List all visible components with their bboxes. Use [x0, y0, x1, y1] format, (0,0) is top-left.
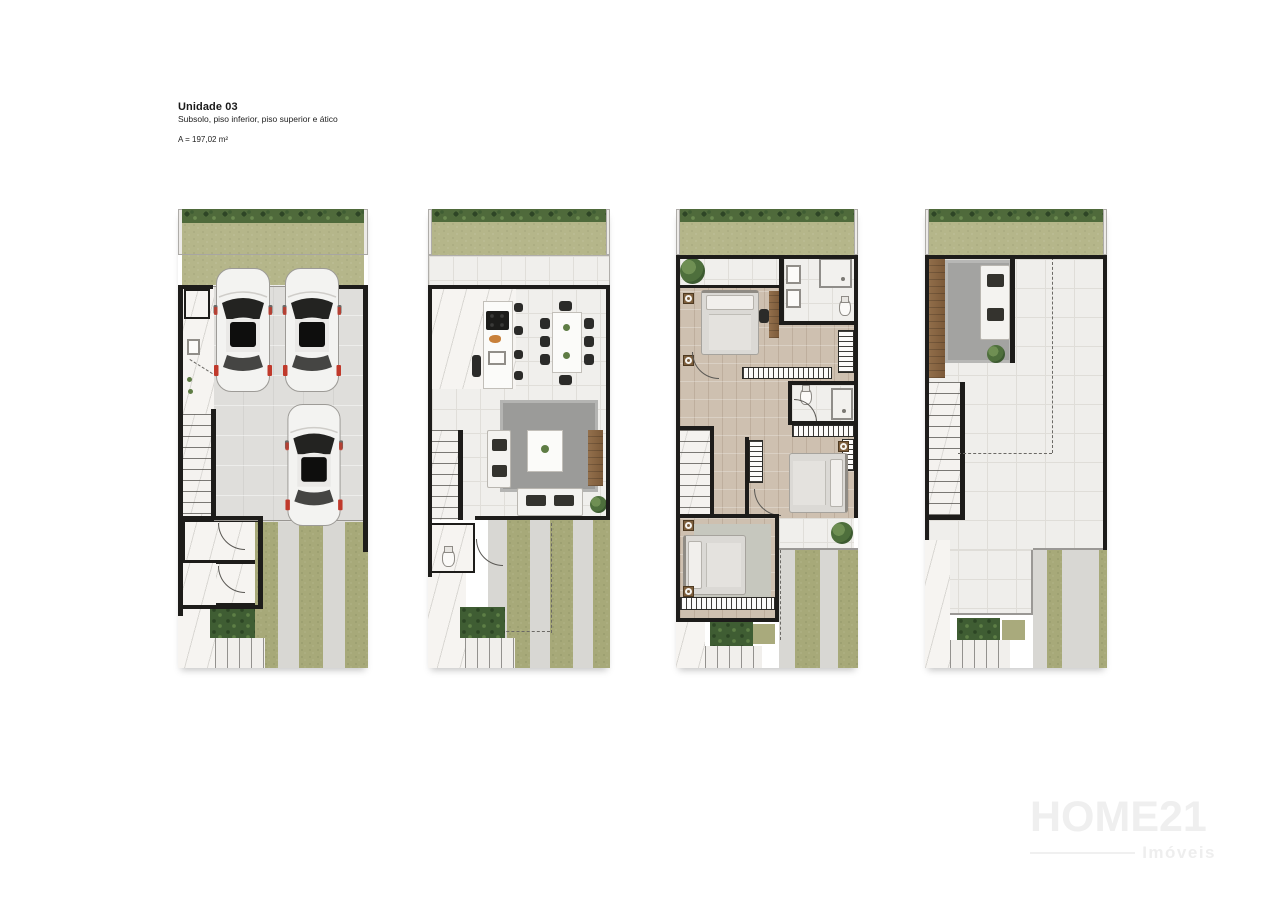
- shrub-hedge: [432, 209, 606, 222]
- unit-subtitle: Subsolo, piso inferior, piso superior e …: [178, 114, 498, 124]
- driveway-grass-strip: [299, 522, 323, 668]
- projection-dashed-line: [1052, 257, 1053, 453]
- storage-closet: [184, 289, 210, 319]
- laundry-tub: [187, 339, 200, 355]
- wall-rooms-right: [258, 516, 263, 609]
- wall-top-left: [183, 285, 213, 289]
- cooktop: [486, 311, 509, 330]
- dining-chairs-right: [584, 318, 594, 329]
- watermark-rule: [1030, 852, 1135, 854]
- master-bed: [701, 290, 759, 355]
- bath-sink: [786, 289, 801, 308]
- dining-chairs-left: [540, 318, 550, 329]
- side-strip: [1103, 209, 1107, 255]
- wall-rooms-bottom: [178, 605, 263, 609]
- closet-hatch: [838, 330, 854, 373]
- tv-panel: [588, 430, 603, 486]
- watermark-brand: HOME21: [1030, 796, 1216, 839]
- side-strip: [854, 209, 858, 255]
- toilet: [839, 299, 851, 316]
- fence-line: [178, 254, 368, 255]
- garden-steps: [950, 640, 1010, 668]
- closet-hatch: [792, 425, 854, 437]
- shower-box: [831, 388, 853, 420]
- suite-top-wall: [680, 285, 779, 288]
- wall-left: [428, 289, 432, 577]
- counter-stool: [472, 355, 481, 377]
- floor-plant: [590, 496, 607, 513]
- parapet: [1031, 550, 1033, 615]
- bath-sink: [786, 265, 801, 284]
- door-swing: [476, 539, 503, 566]
- stair-wall: [458, 430, 463, 520]
- pan: [489, 335, 501, 343]
- wall-top: [428, 285, 610, 289]
- bath-wall: [779, 321, 858, 325]
- driveway-below: [1033, 550, 1107, 668]
- projection-dashed-line: [780, 550, 781, 640]
- lawn-patch: [753, 624, 775, 644]
- wall-bottom: [475, 516, 610, 520]
- unit-area: A = 197,02 m²: [178, 135, 498, 144]
- dining-table: [552, 312, 582, 373]
- parapet: [779, 548, 858, 550]
- plan-atico: [925, 209, 1107, 668]
- staircase: [676, 430, 710, 520]
- shrub-hedge: [680, 209, 854, 222]
- backyard-grass-strip: [593, 520, 610, 668]
- watermark: HOME21 Imóveis: [1030, 796, 1216, 863]
- parapet: [1033, 548, 1107, 550]
- front-lawn: [929, 222, 1103, 255]
- stair-wall: [710, 430, 714, 520]
- wall-top: [676, 255, 858, 259]
- closet-hatch: [742, 367, 832, 379]
- side-path: [676, 622, 705, 668]
- chaise: [487, 430, 511, 488]
- nightstand-marker: [683, 520, 694, 531]
- desk: [769, 291, 779, 338]
- shrub-hedge: [182, 209, 364, 223]
- garden-hedge: [710, 622, 753, 646]
- toilet: [442, 549, 455, 567]
- stair-wall: [960, 382, 965, 520]
- plan-piso-superior: [676, 209, 858, 668]
- garden-steps: [465, 638, 515, 668]
- grass-strip: [838, 550, 858, 668]
- dining-chair-head: [559, 301, 572, 311]
- wall-right: [363, 285, 368, 552]
- wall-right: [1103, 255, 1107, 550]
- wall-left: [676, 255, 680, 622]
- grass-strip: [795, 550, 820, 668]
- watermark-tagline: Imóveis: [1142, 843, 1216, 863]
- side-path: [925, 540, 950, 668]
- front-terrace: [428, 255, 610, 287]
- nightstand-marker: [838, 441, 849, 452]
- projection-dashed-line: [958, 453, 1052, 454]
- wall-left: [178, 285, 183, 616]
- potted-plant: [680, 258, 705, 284]
- wall-rooms-top: [178, 516, 263, 520]
- stairs-to-lower-floor: [183, 414, 211, 514]
- staircase: [927, 382, 960, 520]
- nightstand-marker: [683, 293, 694, 304]
- sofa-cushions: [987, 274, 1004, 287]
- front-lawn: [680, 222, 854, 255]
- wall-left: [925, 255, 929, 540]
- bar-stools: [514, 303, 523, 312]
- plan-subsolo: [178, 209, 368, 668]
- table-plants: [563, 324, 570, 331]
- kitchen-sink: [488, 351, 506, 365]
- watermark-row: Imóveis: [1030, 843, 1216, 863]
- car-icon: [213, 265, 273, 395]
- plan-header: Unidade 03 Subsolo, piso inferior, piso …: [178, 101, 498, 144]
- grass-strip: [1047, 550, 1062, 668]
- garden-hedge: [210, 607, 255, 638]
- grass-strip: [1099, 550, 1107, 668]
- plan-piso-inferior: [428, 209, 610, 668]
- shrub-hedge: [929, 209, 1103, 222]
- staircase: [430, 430, 458, 520]
- wall-right: [606, 289, 610, 520]
- wall-top: [925, 255, 1107, 259]
- closet-hatch: [749, 440, 763, 483]
- car-icon: [283, 403, 345, 527]
- backyard-grass-strip: [550, 520, 573, 668]
- car-icon: [282, 265, 342, 395]
- balcony-plant: [831, 522, 853, 544]
- garden-steps: [705, 646, 762, 668]
- front-lawn: [432, 222, 606, 255]
- bath-wall: [779, 255, 784, 325]
- nightstand-marker: [683, 586, 694, 597]
- entry-steps: [215, 638, 265, 668]
- desk-chair: [759, 309, 769, 323]
- lawn-patch: [1002, 620, 1025, 640]
- coffee-table-plant: [541, 445, 549, 453]
- sofa: [517, 488, 583, 516]
- wall-right: [854, 255, 858, 518]
- tv-wall-panel: [927, 258, 945, 378]
- stair-wall: [676, 426, 714, 430]
- bedroom2-bed: [789, 453, 848, 513]
- shower-box: [819, 258, 852, 288]
- tv-room-wall: [1010, 257, 1015, 363]
- sofa-cushions: [526, 495, 546, 506]
- floor-plant: [987, 345, 1005, 363]
- closet-hatch: [680, 597, 775, 610]
- attic-sofa: [980, 265, 1010, 340]
- dining-chair-foot: [559, 375, 572, 385]
- plant-dots: [187, 377, 192, 382]
- unit-title: Unidade 03: [178, 101, 498, 113]
- stair-wall: [211, 409, 216, 519]
- floorplan-sheet: Unidade 03 Subsolo, piso inferior, piso …: [0, 0, 1280, 904]
- projection-dashed-line: [551, 523, 552, 633]
- side-strip: [606, 209, 610, 255]
- garden-hedge: [460, 607, 505, 638]
- stair-wall: [927, 515, 965, 520]
- chaise-cushions: [492, 439, 507, 451]
